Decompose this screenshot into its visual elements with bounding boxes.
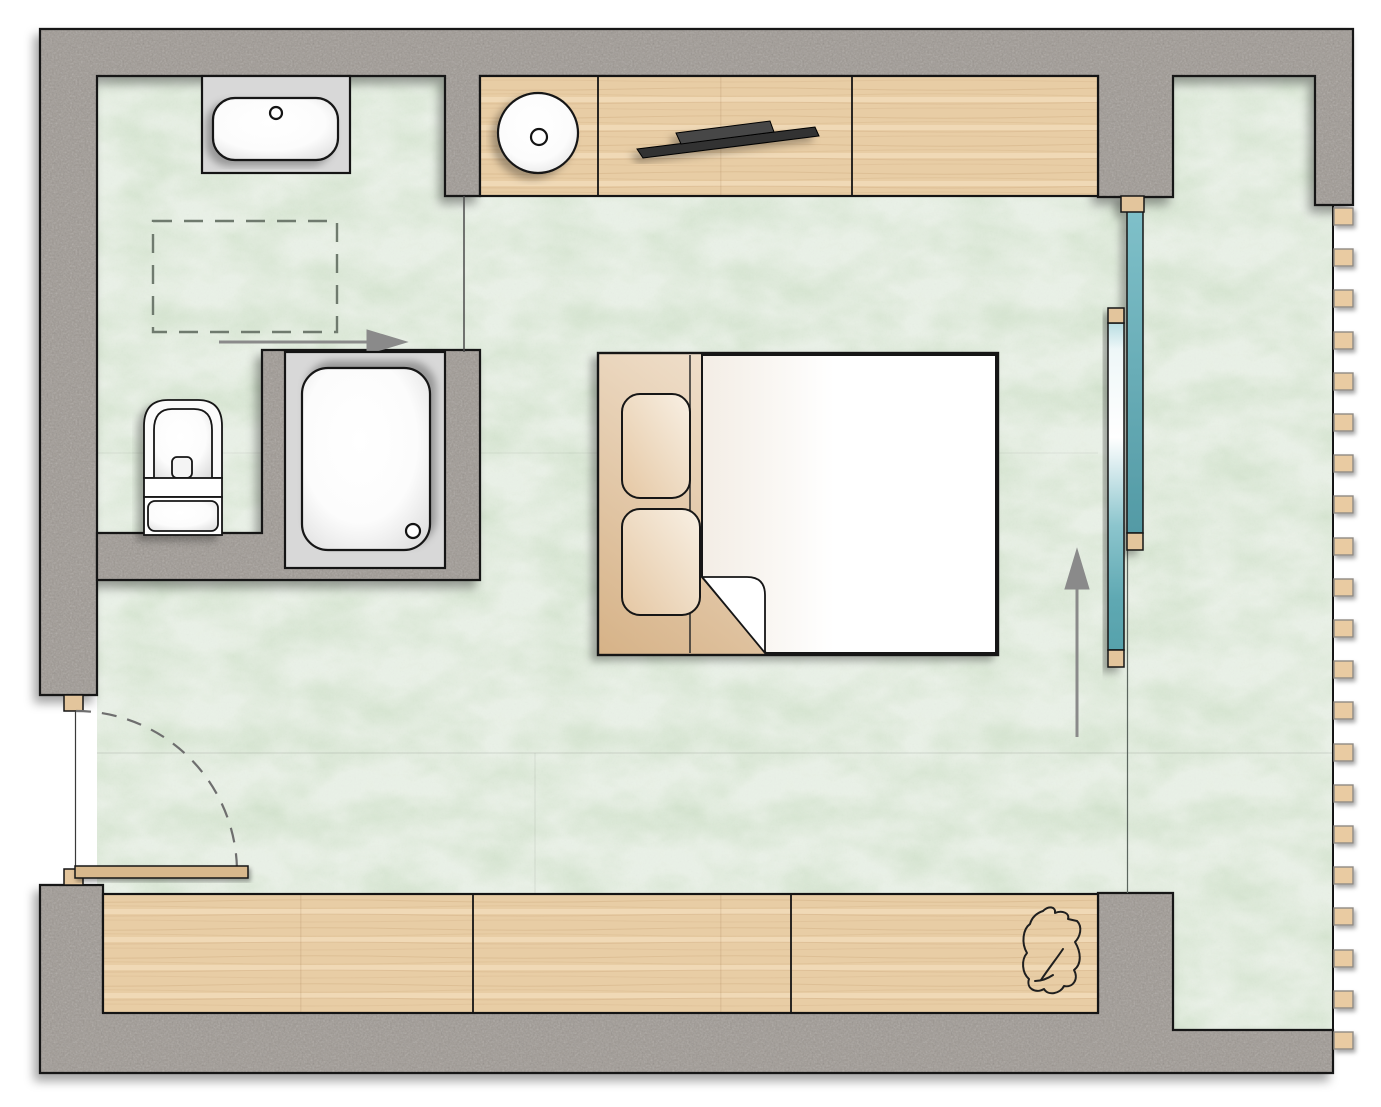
washbasin-unit (202, 76, 350, 173)
louvre-slat (1334, 867, 1353, 884)
pillow (622, 509, 700, 615)
louvre-slat (1334, 950, 1353, 967)
round-basin-drain (531, 129, 547, 145)
louvre-slat (1334, 373, 1353, 390)
shower-tray (302, 368, 430, 550)
louvre-slat (1334, 538, 1353, 555)
bed (598, 353, 998, 655)
glass-panel-sliding (1108, 323, 1124, 650)
louvre-slat (1334, 455, 1353, 472)
louvre-slat (1334, 661, 1353, 678)
toilet (144, 400, 222, 535)
glass-panel-cap (1108, 308, 1124, 323)
louvre-slat (1334, 908, 1353, 925)
glass-panel-cap (1108, 650, 1124, 667)
glass-panel-cap (1121, 196, 1144, 212)
glass-panel-cap (1127, 533, 1143, 550)
louvre-slat (1334, 290, 1353, 307)
toilet-seat-hinge (144, 478, 222, 497)
louvre-screen-slats (1334, 208, 1353, 1049)
louvre-slat (1334, 208, 1353, 225)
floor-plan (0, 0, 1381, 1107)
door-jamb (64, 695, 83, 711)
bench-sideboard (103, 894, 1098, 1013)
louvre-slat (1334, 579, 1353, 596)
washbasin-drain (270, 107, 282, 119)
toilet-cistern-lid (148, 501, 218, 531)
louvre-slat (1334, 991, 1353, 1008)
louvre-slat (1334, 414, 1353, 431)
louvre-slat (1334, 249, 1353, 266)
louvre-slat (1334, 496, 1353, 513)
louvre-slat (1334, 332, 1353, 349)
shower-unit (285, 352, 445, 568)
louvre-slat (1334, 1032, 1353, 1049)
pillow (622, 394, 690, 498)
louvre-slat (1334, 620, 1353, 637)
glass-panel-fixed (1127, 211, 1143, 533)
louvre-slat (1334, 826, 1353, 843)
door-leaf (75, 866, 248, 878)
shower-drain (406, 524, 420, 538)
louvre-slat (1334, 744, 1353, 761)
vanity-counter (480, 76, 1098, 196)
louvre-slat (1334, 785, 1353, 802)
bench-top (103, 894, 1098, 1013)
toilet-flush-button (172, 457, 192, 478)
louvre-slat (1334, 702, 1353, 719)
